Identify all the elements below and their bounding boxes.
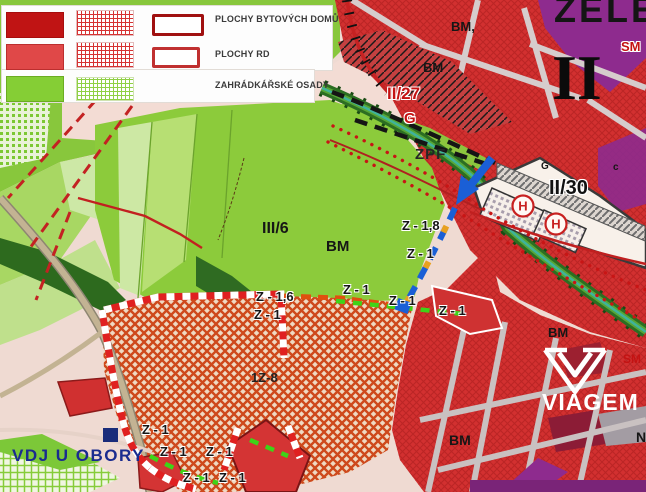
legend-swatch-rd-solid [6, 44, 64, 70]
label-iii6: III/6 [262, 221, 289, 237]
label-z1: Z - 1 [343, 283, 370, 296]
legend-swatch-osady-hatch [76, 77, 134, 101]
label-z1: Z - 1 [183, 471, 210, 484]
label-z1: Z - 1 [389, 294, 416, 307]
legend-swatch-rd-hatch [76, 42, 134, 68]
label-g-red: G [404, 111, 416, 126]
label-z1: Z - 1 [407, 247, 434, 260]
label-sm-right: SM [623, 353, 641, 365]
legend-swatch-rd-outline [152, 47, 200, 68]
label-bm-top-b: BM [423, 61, 443, 74]
zoning-map: H H PLOCHY BYTOVÝCH DOMŮ PLOCHY RD ZAHRÁ… [0, 0, 646, 492]
label-z1: Z - 1 [254, 308, 281, 321]
label-bm-right: BM [548, 326, 568, 339]
label-zele: ZELE [554, 0, 646, 28]
legend-swatch-bytove-solid [6, 12, 64, 38]
label-ii30: II/30 [549, 178, 588, 198]
label-ii27: II/27 [387, 85, 420, 102]
label-z1: Z - 1 [160, 445, 187, 458]
legend-swatch-bytove-hatch [76, 10, 134, 36]
reservoir-marker [103, 428, 118, 442]
label-z1: Z - 1 [206, 445, 233, 458]
legend-label-bytove: PLOCHY BYTOVÝCH DOMŮ [215, 14, 339, 24]
zone-iii6 [95, 100, 445, 303]
label-g-small: G [541, 162, 549, 172]
h-symbol: H [551, 217, 560, 232]
label-z1: Z - 1 [439, 304, 466, 317]
label-bm-center: BM [326, 239, 349, 254]
label-n-bottom: N [636, 430, 646, 444]
label-roman-ii: II [552, 46, 602, 110]
legend-swatch-bytove-outline [152, 14, 204, 36]
label-z16: Z - 1,6 [256, 290, 294, 303]
label-z1: Z - 1 [142, 423, 169, 436]
label-c-small: c [613, 163, 619, 173]
label-vdj-u-obory: VDJ U OBORY [12, 447, 145, 464]
label-bm-top-a: BM, [451, 20, 475, 33]
h-symbol: H [518, 199, 527, 214]
label-bm-bottom: BM [449, 433, 471, 447]
label-z18: Z - 1,8 [402, 219, 440, 232]
label-sm-top: SM [621, 40, 641, 53]
label-1z8: 1Z-8 [251, 371, 278, 384]
legend-swatch-osady-solid [6, 76, 64, 102]
label-viagem: VIAGEM [542, 391, 639, 414]
legend-label-osady: ZAHRÁDKÁŘSKÉ OSADY [215, 80, 329, 90]
label-z1: Z - 1 [219, 471, 246, 484]
label-zpf: ZPF [415, 147, 446, 162]
legend-label-rd: PLOCHY RD [215, 49, 270, 59]
